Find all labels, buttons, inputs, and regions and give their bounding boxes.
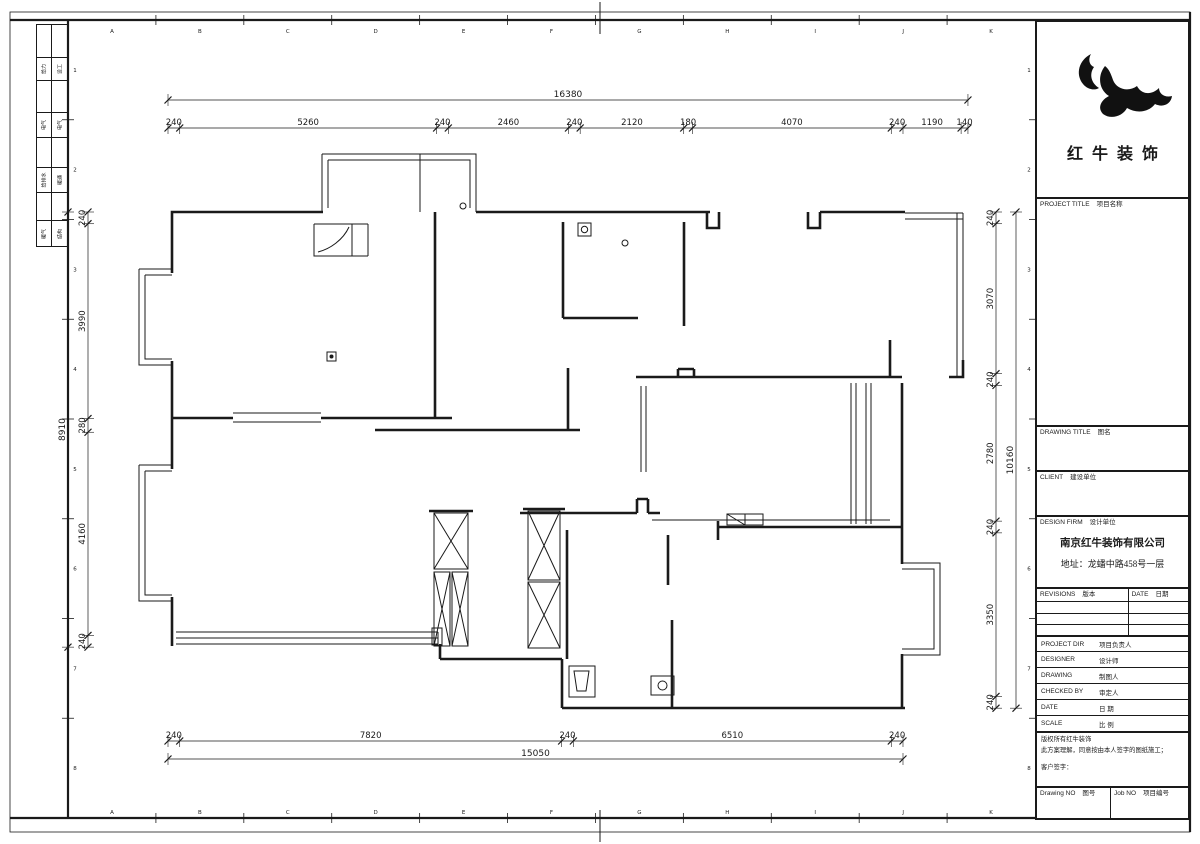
svg-text:C: C (286, 29, 290, 35)
basin-symbol (651, 676, 674, 695)
svg-text:10160: 10160 (1006, 446, 1016, 475)
svg-text:8: 8 (73, 766, 77, 772)
svg-text:2: 2 (1027, 168, 1031, 174)
row-checked-by: CHECKED BY审定人 (1037, 683, 1188, 699)
svg-text:4160: 4160 (78, 523, 88, 545)
revisions-en: REVISIONS (1040, 591, 1075, 598)
section-revisions: REVISIONS版本 DATE日期 (1037, 587, 1188, 635)
section-client: CLIENT建设单位 (1037, 470, 1188, 515)
svg-text:2780: 2780 (986, 442, 996, 464)
svg-text:3070: 3070 (986, 288, 996, 310)
svg-text:H: H (725, 810, 729, 816)
client-cn: 建设单位 (1070, 474, 1096, 481)
svg-text:5260: 5260 (297, 118, 319, 128)
svg-text:D: D (374, 810, 378, 816)
signoff-empty-row (37, 193, 67, 221)
company-address: 地址：龙蟠中路458号一层 (1037, 557, 1188, 570)
section-project-title: PROJECT TITLE项目名称 (1037, 197, 1188, 425)
revisions-cn: 版本 (1082, 591, 1095, 598)
svg-text:I: I (814, 810, 816, 816)
signoff-label: 给力 (41, 64, 48, 74)
copyright-line2: 此方案理解，同意按由本人签字的图纸施工； (1037, 744, 1188, 755)
svg-text:3990: 3990 (78, 310, 88, 332)
corner-window (905, 213, 963, 378)
signoff-table: 给力 设工 电气 电气 给排水 暖通 暖气 结构 (36, 24, 68, 247)
screen-partition (641, 386, 646, 472)
rev-date-cn: 日期 (1155, 591, 1168, 598)
svg-text:1: 1 (1027, 68, 1031, 74)
design-firm-en: DESIGN FIRM (1040, 519, 1083, 526)
svg-text:3: 3 (73, 267, 77, 273)
svg-text:8: 8 (1027, 766, 1031, 772)
project-title-en: PROJECT TITLE (1040, 201, 1090, 208)
svg-text:A: A (110, 810, 114, 816)
toilet-symbol (569, 666, 595, 697)
signoff-empty-row (37, 25, 67, 58)
section-credits: PROJECT DIR项目负责人 DESIGNER设计师 DRAWING制图人 … (1037, 635, 1188, 731)
drawing-title-cn: 图名 (1098, 429, 1111, 436)
closet-symbol (314, 224, 368, 256)
floor-plan-svg: AABBCCDDEEFFGGHHIIJJKK1122334455667788 (0, 0, 1200, 844)
dimension-chains: 1638024052602402460240212018040702401190… (58, 90, 1022, 765)
svg-text:2120: 2120 (621, 118, 643, 128)
svg-text:K: K (989, 29, 993, 35)
rev-date-en: DATE (1132, 591, 1149, 598)
svg-text:I: I (814, 29, 816, 35)
svg-text:E: E (462, 29, 466, 35)
section-drawing-title: DRAWING TITLE图名 (1037, 425, 1188, 470)
revision-row (1037, 614, 1188, 626)
signoff-label-row: 暖气 结构 (37, 221, 67, 246)
floor-drain-icon (581, 226, 587, 232)
drawing-title-en: DRAWING TITLE (1040, 429, 1091, 436)
svg-text:4: 4 (73, 367, 77, 373)
signoff-label: 暖通 (56, 175, 63, 185)
rednbull-logo-icon (1053, 40, 1173, 132)
svg-text:7: 7 (73, 666, 77, 672)
design-firm-cn: 设计单位 (1090, 519, 1116, 526)
row-drawing: DRAWING制图人 (1037, 667, 1188, 683)
drawing-sheet: AABBCCDDEEFFGGHHIIJJKK1122334455667788 (0, 0, 1200, 844)
floor-drain-icon (622, 240, 628, 246)
row-designer: DESIGNER设计师 (1037, 651, 1188, 667)
bay-window-right (902, 563, 940, 655)
floor-plan-walls (172, 212, 963, 708)
svg-text:1190: 1190 (921, 118, 943, 128)
svg-text:D: D (374, 29, 378, 35)
drawing-no-cn: 图号 (1082, 790, 1095, 797)
svg-text:F: F (550, 810, 553, 816)
svg-text:15050: 15050 (521, 749, 550, 759)
svg-text:K: K (989, 810, 993, 816)
svg-text:C: C (286, 810, 290, 816)
svg-text:G: G (637, 29, 641, 35)
brand-name: 红牛装饰 (1037, 140, 1188, 164)
signoff-label: 暖气 (41, 228, 48, 238)
section-design-firm: DESIGN FIRM设计单位 南京红牛装饰有限公司 地址：龙蟠中路458号一层 (1037, 515, 1188, 587)
svg-text:J: J (901, 29, 904, 35)
signoff-label: 结构 (56, 228, 63, 238)
bay-window-left-bottom (139, 465, 172, 601)
svg-text:B: B (198, 810, 202, 816)
job-no-cn: 项目编号 (1143, 790, 1169, 797)
svg-text:3: 3 (1027, 267, 1031, 273)
balcony-platform (322, 154, 476, 212)
signoff-label: 电气 (41, 120, 48, 130)
svg-text:E: E (462, 810, 466, 816)
signoff-label: 设工 (56, 64, 63, 74)
svg-text:3350: 3350 (986, 604, 996, 626)
svg-text:1: 1 (73, 68, 77, 74)
row-date: DATE日 期 (1037, 699, 1188, 715)
signoff-empty-row (37, 138, 67, 168)
signoff-label-row: 给排水 暖通 (37, 168, 67, 193)
svg-text:6: 6 (73, 567, 77, 573)
svg-text:4: 4 (1027, 367, 1031, 373)
shower-corner (578, 223, 591, 236)
bedroom1-window (233, 413, 321, 422)
signoff-label: 给排水 (41, 172, 48, 187)
duct-shafts-hatched (434, 511, 560, 648)
glass-partition (851, 383, 871, 524)
svg-text:G: G (637, 810, 641, 816)
svg-text:6: 6 (1027, 567, 1031, 573)
svg-text:2460: 2460 (498, 118, 520, 128)
section-copyright: 版权所有红牛装饰 此方案理解，同意按由本人签字的图纸施工； 客户签字： (1037, 731, 1188, 786)
logo-area: 红牛装饰 (1037, 22, 1188, 197)
signoff-label: 电气 (56, 120, 63, 130)
svg-text:6510: 6510 (721, 731, 743, 741)
revision-row (1037, 602, 1188, 614)
living-room-window (176, 632, 438, 644)
copyright-line1: 版权所有红牛装饰 (1037, 733, 1188, 744)
signoff-empty-row (37, 81, 67, 113)
floor-plan-details (139, 154, 963, 697)
svg-text:B: B (198, 29, 202, 35)
company-name: 南京红牛装饰有限公司 (1037, 535, 1188, 550)
svg-text:280: 280 (78, 417, 88, 433)
row-project-dir: PROJECT DIR项目负责人 (1037, 635, 1188, 651)
bay-window-left-top (139, 269, 172, 365)
svg-text:16380: 16380 (554, 90, 583, 100)
signoff-label-row: 电气 电气 (37, 113, 67, 138)
svg-text:8910: 8910 (58, 418, 68, 441)
svg-text:A: A (110, 29, 114, 35)
customer-signature-label: 客户签字： (1037, 761, 1188, 772)
svg-text:7: 7 (1027, 666, 1031, 672)
title-block: 红牛装饰 PROJECT TITLE项目名称 DRAWING TITLE图名 C… (1035, 20, 1190, 820)
svg-text:F: F (550, 29, 553, 35)
client-en: CLIENT (1040, 474, 1063, 481)
project-title-cn: 项目名称 (1097, 201, 1123, 208)
job-no-en: Job NO (1114, 790, 1136, 797)
signoff-label-row: 给力 设工 (37, 58, 67, 81)
svg-text:2: 2 (73, 168, 77, 174)
row-scale: SCALE比 例 (1037, 715, 1188, 731)
svg-text:5: 5 (1027, 467, 1031, 473)
floor-drain-icon (460, 203, 466, 209)
svg-text:5: 5 (73, 467, 77, 473)
section-numbers: Drawing NO图号 Job NO项目编号 (1037, 786, 1188, 820)
svg-text:J: J (901, 810, 904, 816)
svg-text:7820: 7820 (360, 731, 382, 741)
svg-text:4070: 4070 (781, 118, 803, 128)
drawing-no-en: Drawing NO (1040, 790, 1075, 797)
svg-text:H: H (725, 29, 729, 35)
